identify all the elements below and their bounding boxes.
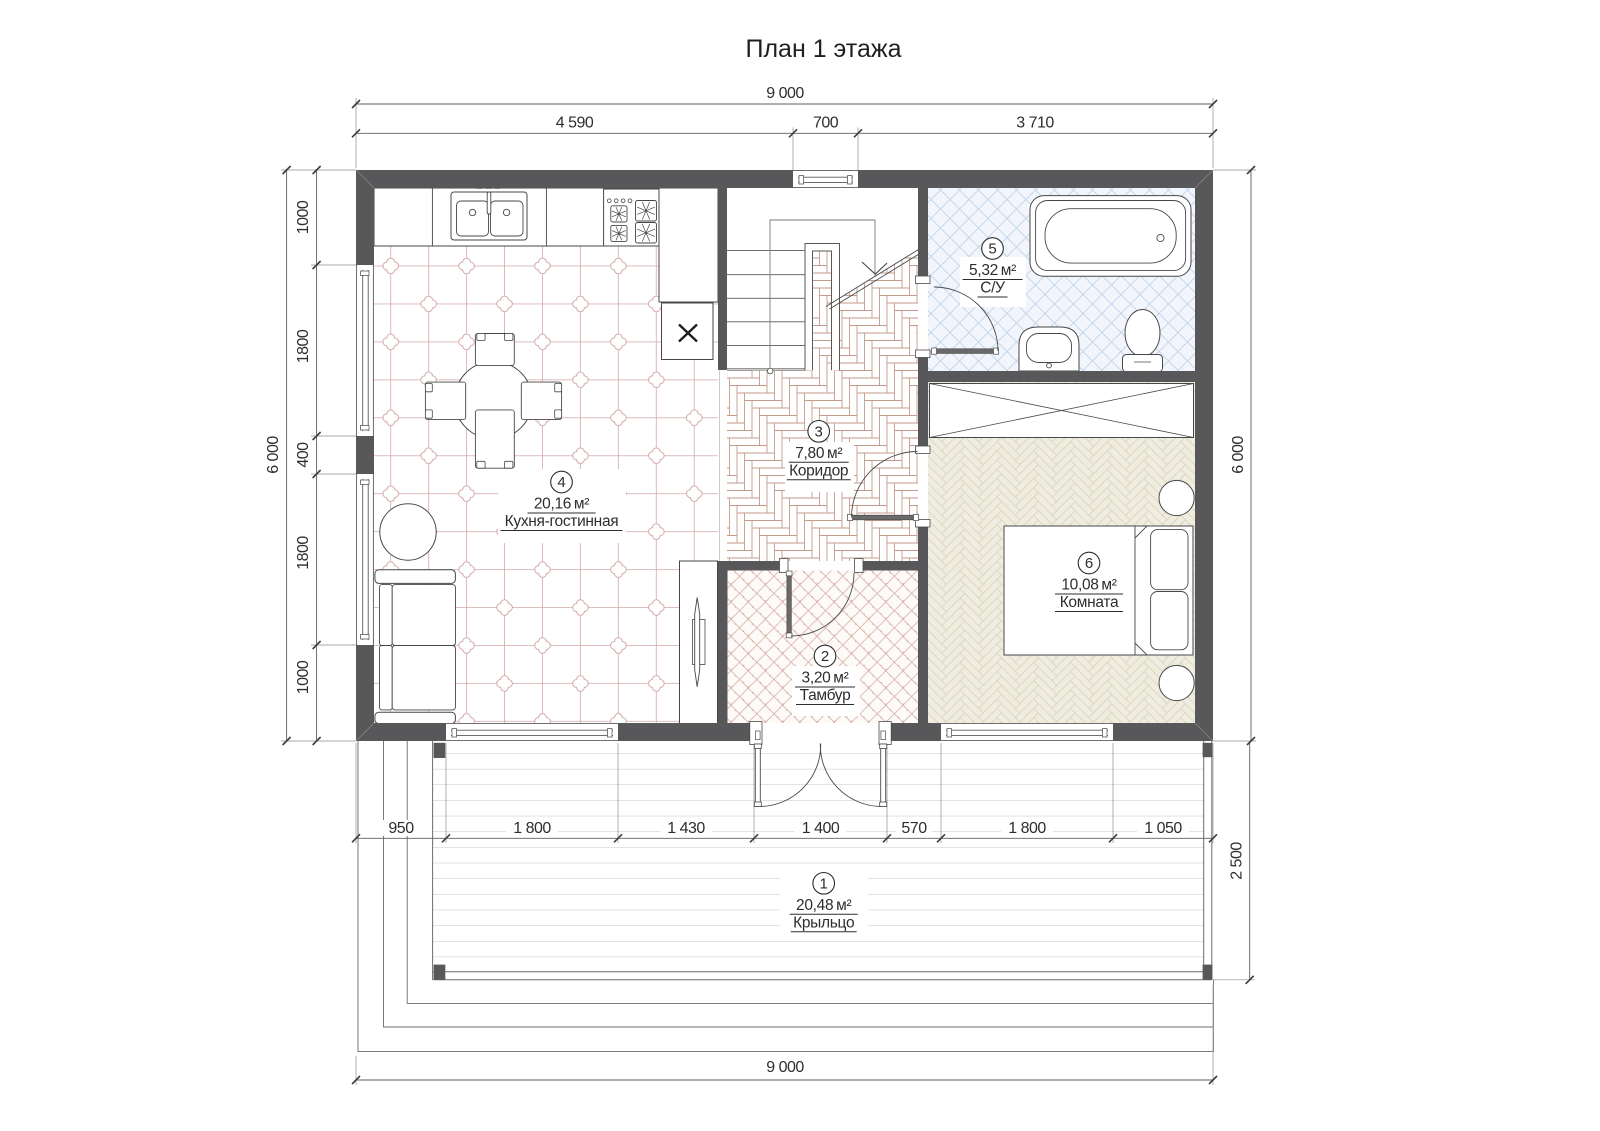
svg-text:3: 3: [815, 424, 823, 441]
svg-text:7,80 м²: 7,80 м²: [795, 445, 842, 462]
svg-text:1 050: 1 050: [1144, 820, 1182, 837]
svg-text:1 430: 1 430: [667, 820, 705, 837]
svg-text:4: 4: [557, 474, 565, 491]
svg-text:20,16 м²: 20,16 м²: [534, 496, 589, 513]
svg-text:1 400: 1 400: [802, 820, 840, 837]
svg-text:С/У: С/У: [980, 280, 1005, 297]
svg-text:1000: 1000: [295, 200, 312, 234]
svg-text:5,32 м²: 5,32 м²: [969, 262, 1016, 279]
svg-text:Крыльцо: Крыльцо: [793, 914, 854, 931]
svg-text:1000: 1000: [295, 660, 312, 694]
svg-text:950: 950: [388, 820, 414, 837]
svg-text:6: 6: [1085, 555, 1093, 572]
svg-text:1800: 1800: [295, 536, 312, 570]
svg-text:10,08 м²: 10,08 м²: [1061, 577, 1116, 594]
svg-text:570: 570: [901, 820, 927, 837]
svg-text:1 800: 1 800: [513, 820, 551, 837]
svg-text:Тамбур: Тамбур: [800, 687, 851, 704]
svg-text:1800: 1800: [295, 329, 312, 363]
svg-text:20,48 м²: 20,48 м²: [796, 897, 851, 914]
svg-text:9 000: 9 000: [766, 1059, 804, 1076]
svg-text:3 710: 3 710: [1016, 115, 1054, 132]
svg-text:4 590: 4 590: [556, 115, 594, 132]
svg-text:Комната: Комната: [1060, 594, 1119, 611]
svg-text:6 000: 6 000: [1230, 436, 1247, 474]
svg-text:6 000: 6 000: [265, 436, 282, 474]
svg-text:5: 5: [988, 241, 996, 258]
svg-text:3,20 м²: 3,20 м²: [802, 670, 849, 687]
svg-text:Кухня-гостинная: Кухня-гостинная: [505, 513, 619, 530]
svg-text:План 1 этажа: План 1 этажа: [746, 35, 902, 63]
svg-text:Коридор: Коридор: [789, 462, 848, 479]
svg-text:1 800: 1 800: [1008, 820, 1046, 837]
svg-text:400: 400: [295, 442, 312, 468]
svg-text:9 000: 9 000: [766, 85, 804, 102]
svg-text:1: 1: [820, 876, 828, 893]
svg-text:2 500: 2 500: [1229, 842, 1246, 880]
svg-text:700: 700: [813, 115, 839, 132]
svg-text:2: 2: [821, 648, 829, 665]
